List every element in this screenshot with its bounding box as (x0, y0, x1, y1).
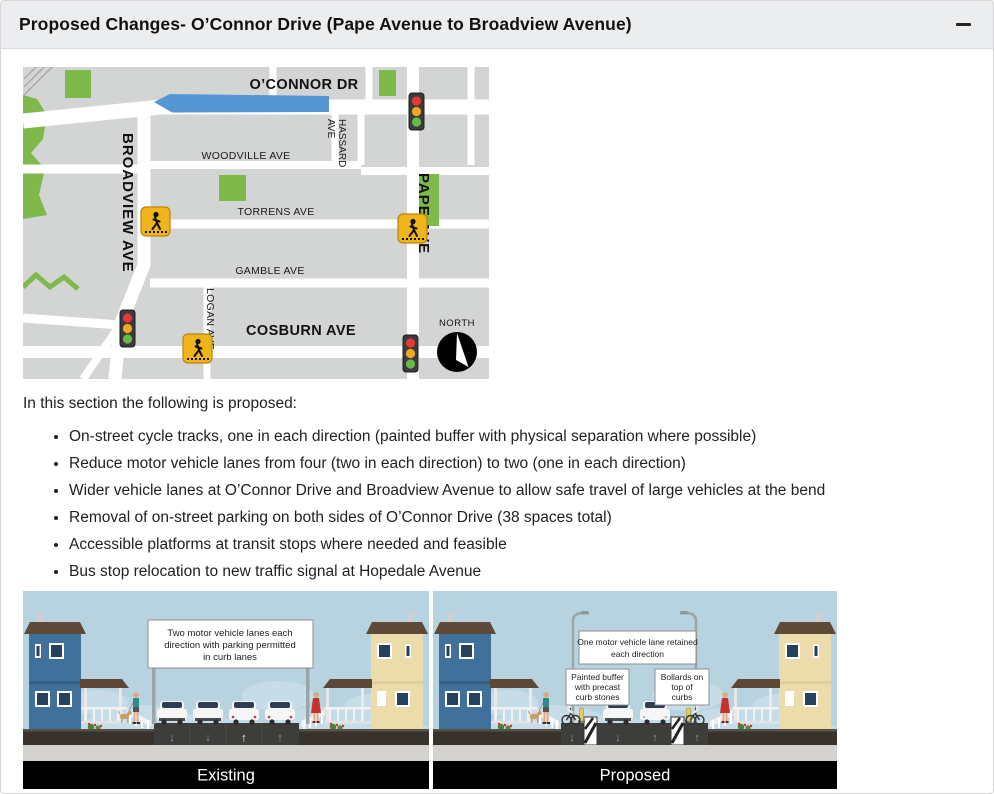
bike-lane-arrow-down: ↓ (569, 732, 575, 744)
lane-arrow-up: ↑ (241, 731, 247, 745)
svg-text:top of: top of (671, 682, 693, 692)
svg-text:curb stones: curb stones (576, 692, 620, 702)
proposed-cross-section: ↓ ↓ ↑ ↑ (433, 591, 837, 789)
proposal-bullet-item: Bus stop relocation to new traffic signa… (69, 562, 971, 581)
area-map: O’CONNOR DR WOODVILLE AVE HASSARD AVE TO… (23, 67, 971, 379)
svg-text:in curb lanes: in curb lanes (203, 652, 257, 663)
proposal-bullet-item: Reduce motor vehicle lanes from four (tw… (69, 454, 971, 473)
street-label-woodville: WOODVILLE AVE (202, 150, 291, 162)
svg-text:NORTH: NORTH (439, 318, 475, 329)
svg-text:Two motor vehicle lanes each: Two motor vehicle lanes each (167, 628, 292, 639)
proposed-annotation-sign-lanes: One motor vehicle lane retained each dir… (577, 631, 698, 664)
minus-icon (956, 23, 971, 26)
proposed-annotation-sign-bollards: Bollards on top of curbs (655, 669, 709, 705)
proposed-annotation-sign-buffer: Painted buffer with precast curb stones (566, 669, 629, 705)
svg-text:with precast: with precast (574, 682, 621, 692)
pedestrian-crossing-icon (398, 214, 427, 243)
painted-buffer-hatch (584, 717, 597, 745)
proposed-changes-section: Proposed Changes- O’Connor Drive (Pape A… (0, 0, 994, 794)
proposal-list: On-street cycle tracks, one in each dire… (23, 427, 971, 581)
existing-cross-section: ↓ ↓ ↑ ↑ (23, 591, 429, 789)
svg-text:curbs: curbs (672, 692, 693, 702)
traffic-signal-icon (409, 93, 424, 130)
street-label-cosburn: COSBURN AVE (246, 323, 356, 339)
lane-arrow-down: ↓ (205, 732, 211, 744)
roadway-existing: ↓ ↓ ↑ ↑ (154, 723, 299, 745)
bike-lane-arrow-up: ↑ (694, 732, 700, 744)
section-content: O’CONNOR DR WOODVILLE AVE HASSARD AVE TO… (1, 49, 993, 789)
oconnor-highlight-segment (154, 94, 329, 113)
lane-arrow-up: ↑ (652, 732, 658, 744)
section-title: Proposed Changes- O’Connor Drive (Pape A… (19, 14, 632, 35)
north-arrow-icon: NORTH (437, 318, 477, 372)
street-map-image: O’CONNOR DR WOODVILLE AVE HASSARD AVE TO… (23, 67, 489, 379)
svg-text:each direction: each direction (611, 649, 664, 659)
existing-banner-label: Existing (197, 767, 255, 785)
lane-arrow-up: ↑ (277, 732, 283, 744)
street-label-torrens: TORRENS AVE (237, 206, 314, 218)
pedestrian-crossing-icon (183, 334, 212, 363)
svg-text:One motor vehicle lane retaine: One motor vehicle lane retained (577, 637, 698, 647)
street-label-gamble: GAMBLE AVE (235, 265, 304, 277)
proposal-bullet-item: Wider vehicle lanes at O’Connor Drive an… (69, 481, 971, 500)
svg-text:Painted buffer: Painted buffer (571, 672, 624, 682)
street-label-broadview: BROADVIEW AVE (119, 133, 136, 273)
traffic-signal-icon (120, 310, 135, 347)
intro-text: In this section the following is propose… (23, 394, 971, 414)
proposal-bullet-item: Removal of on-street parking on both sid… (69, 508, 971, 527)
cross-section-figures: ↓ ↓ ↑ ↑ (23, 591, 971, 789)
street-label-oconnor: O’CONNOR DR (249, 77, 358, 93)
lane-arrow-down: ↓ (169, 732, 175, 744)
svg-text:Bollards on: Bollards on (661, 672, 704, 682)
proposal-bullet-item: On-street cycle tracks, one in each dire… (69, 427, 971, 446)
proposed-banner-label: Proposed (600, 767, 671, 785)
pedestrian-crossing-icon (141, 207, 170, 236)
proposal-bullet-item: Accessible platforms at transit stops wh… (69, 535, 971, 554)
svg-text:direction with parking permitt: direction with parking permitted (164, 640, 295, 651)
section-header: Proposed Changes- O’Connor Drive (Pape A… (1, 1, 993, 49)
collapse-section-button[interactable] (951, 13, 975, 37)
lane-arrow-down: ↓ (615, 732, 621, 744)
painted-buffer-hatch (671, 717, 684, 745)
traffic-signal-icon (403, 335, 418, 372)
